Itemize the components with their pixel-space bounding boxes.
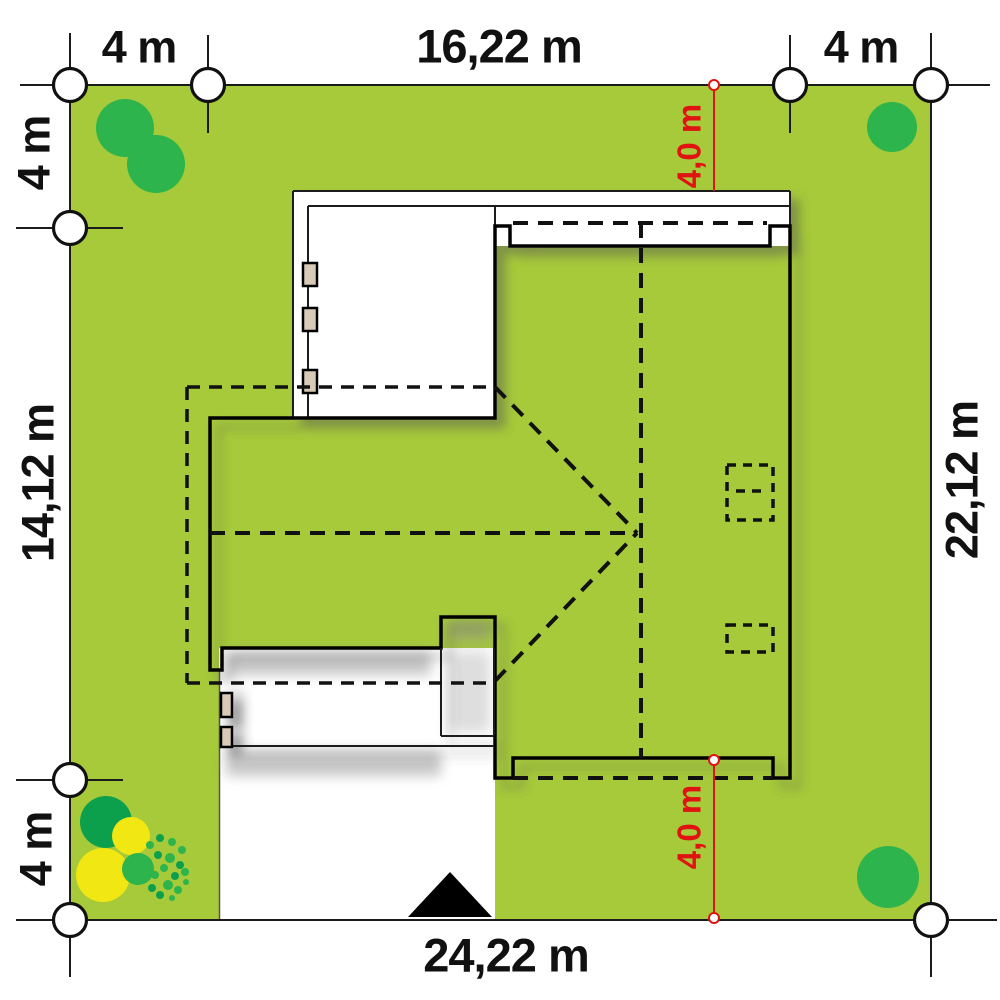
setback-label-top: 4,0 m [673, 104, 706, 188]
dim-label-top-left: 4 m [102, 25, 177, 70]
setback-label-bottom: 4,0 m [673, 785, 706, 869]
pillars-left [303, 263, 317, 393]
dim-label-left-top: 4 m [12, 116, 57, 191]
site-plan-drawing [0, 0, 1000, 1000]
dim-label-right: 22,12 m [940, 401, 985, 559]
tree-top-right [867, 102, 917, 152]
dim-label-left-middle: 14,12 m [16, 404, 61, 562]
dim-label-left-bottom: 4 m [14, 812, 59, 887]
tree-bottom-right [857, 846, 919, 908]
site-plan: 4 m 16,22 m 4 m 4 m 14,12 m 4 m 22,12 m … [0, 0, 1000, 1000]
house-white-wing [293, 191, 495, 418]
dim-label-bottom: 24,22 m [423, 932, 588, 979]
dim-label-top-center: 16,22 m [416, 23, 581, 70]
dim-label-top-right: 4 m [824, 25, 899, 70]
